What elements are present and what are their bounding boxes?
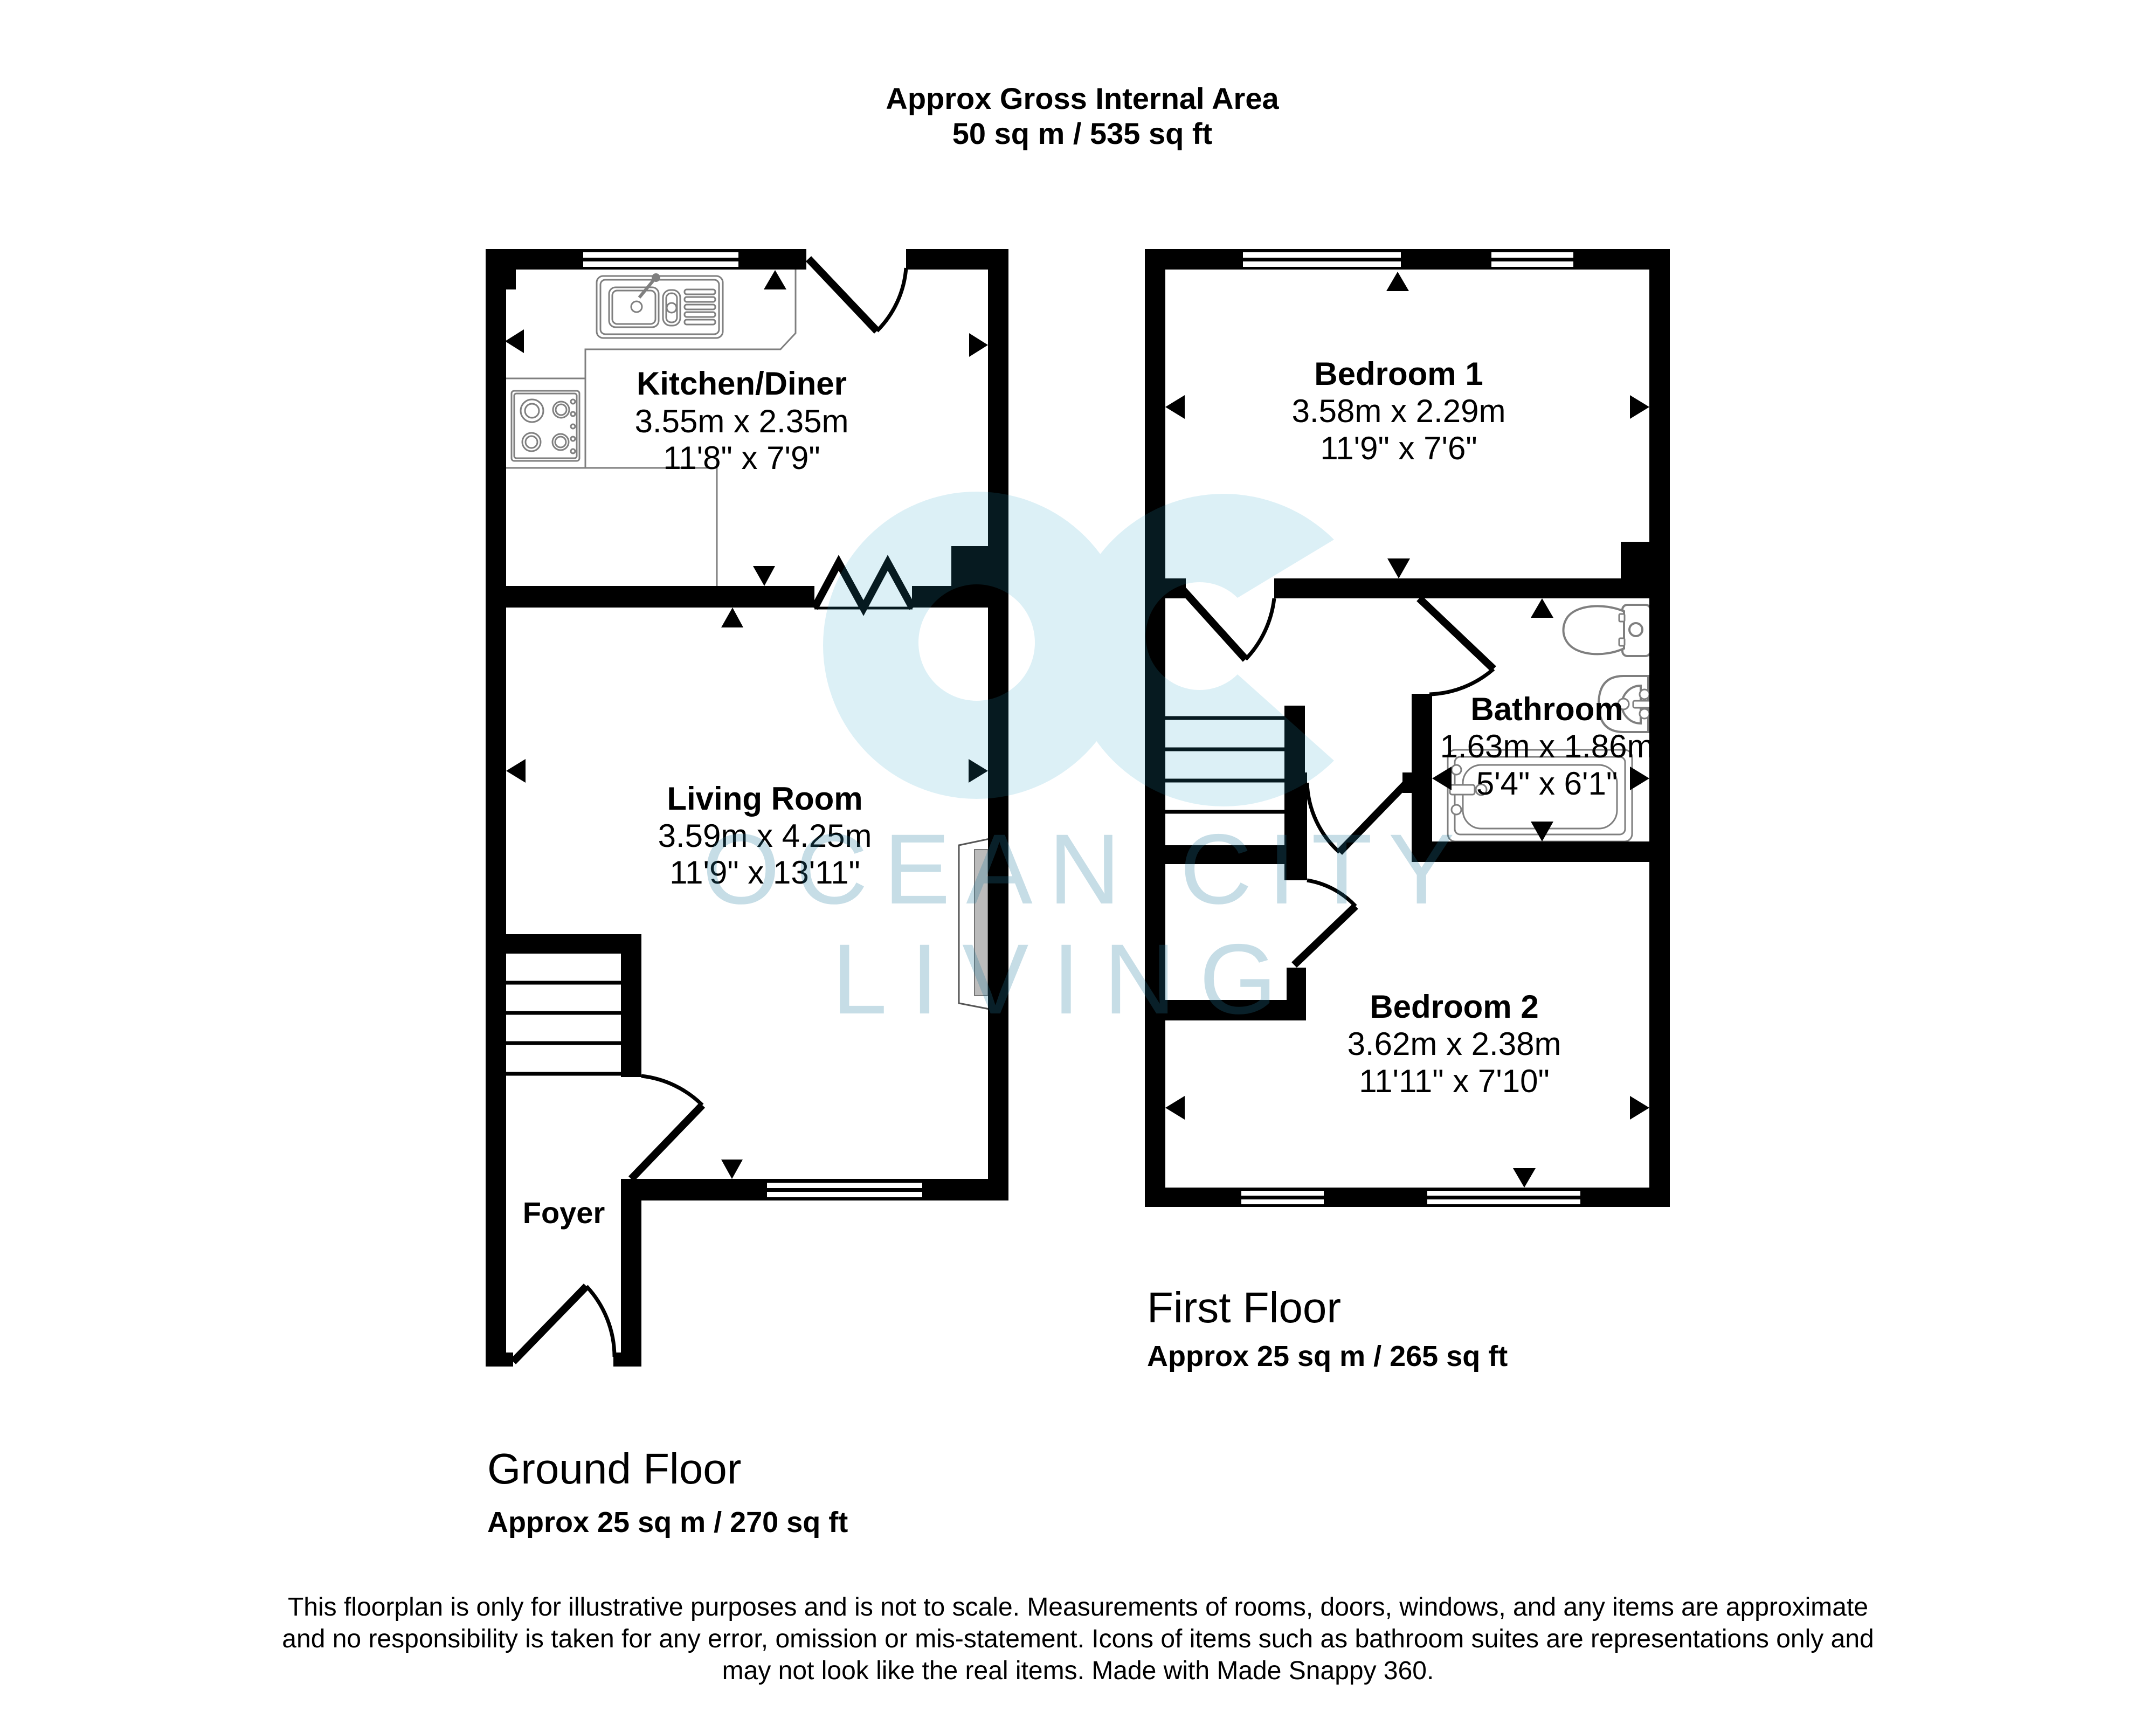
svg-text:and no responsibility is taken: and no responsibility is taken for any e… <box>282 1625 1874 1653</box>
svg-text:Approx 25 sq m / 265 sq ft: Approx 25 sq m / 265 sq ft <box>1147 1340 1508 1372</box>
svg-text:Living Room: Living Room <box>667 781 862 817</box>
svg-text:Ground Floor: Ground Floor <box>487 1445 741 1493</box>
svg-text:1.63m x 1.86m: 1.63m x 1.86m <box>1440 728 1654 764</box>
svg-text:3.55m x 2.35m: 3.55m x 2.35m <box>635 403 849 439</box>
svg-text:11'8" x 7'9": 11'8" x 7'9" <box>663 440 820 476</box>
svg-text:Bathroom: Bathroom <box>1470 691 1623 727</box>
svg-text:Bedroom 2: Bedroom 2 <box>1370 989 1538 1025</box>
svg-text:OCEAN CITY: OCEAN CITY <box>702 814 1455 925</box>
svg-text:11'9" x 7'6": 11'9" x 7'6" <box>1320 430 1477 466</box>
svg-text:Kitchen/Diner: Kitchen/Diner <box>637 365 847 402</box>
svg-text:Approx Gross Internal Area: Approx Gross Internal Area <box>886 81 1279 115</box>
svg-text:Approx 25 sq m / 270 sq ft: Approx 25 sq m / 270 sq ft <box>487 1506 848 1538</box>
svg-text:First Floor: First Floor <box>1147 1284 1341 1331</box>
svg-text:3.58m x 2.29m: 3.58m x 2.29m <box>1292 393 1506 429</box>
svg-text:may not look like the real ite: may not look like the real items. Made w… <box>722 1657 1434 1685</box>
svg-text:3.62m x 2.38m: 3.62m x 2.38m <box>1347 1026 1561 1062</box>
svg-text:This floorplan is only for ill: This floorplan is only for illustrative … <box>288 1593 1868 1621</box>
svg-text:Bedroom 1: Bedroom 1 <box>1314 356 1483 392</box>
svg-text:50 sq m / 535 sq ft: 50 sq m / 535 sq ft <box>952 116 1212 150</box>
svg-text:11'11" x 7'10": 11'11" x 7'10" <box>1359 1063 1550 1099</box>
svg-text:Foyer: Foyer <box>523 1196 605 1230</box>
svg-text:5'4" x 6'1": 5'4" x 6'1" <box>1476 765 1618 802</box>
